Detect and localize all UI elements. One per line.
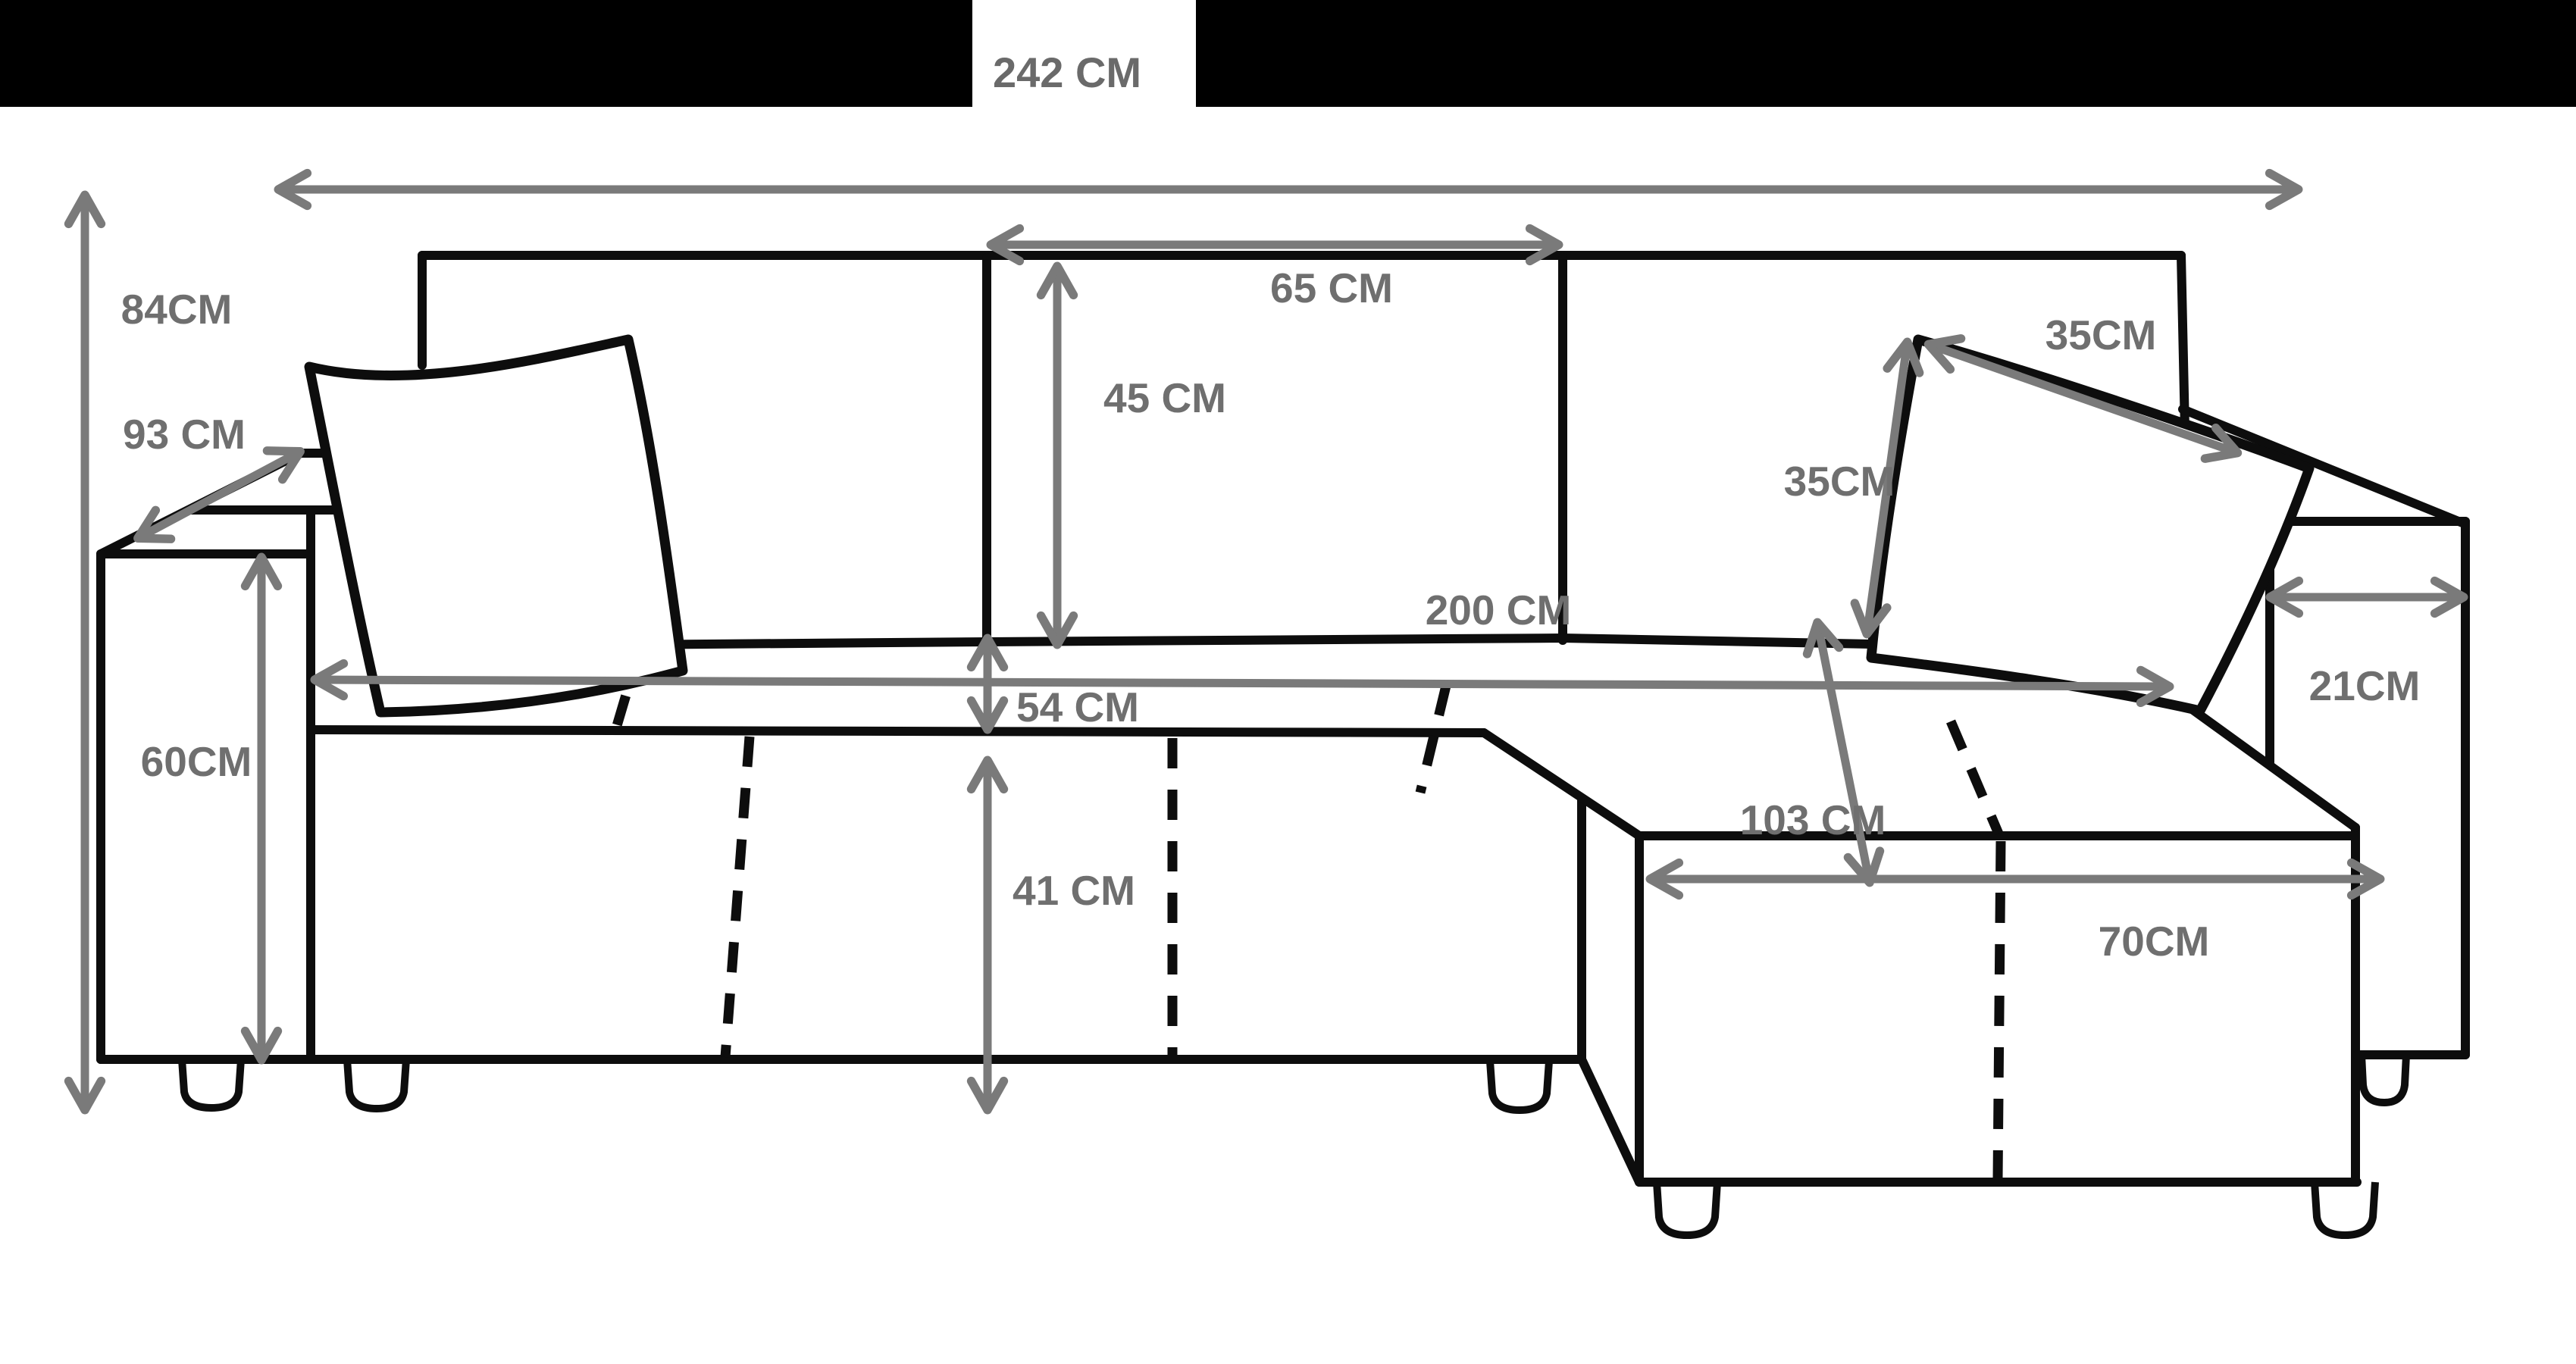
left-pillow	[309, 339, 683, 712]
seam-seat-right	[1420, 686, 1446, 793]
label-total-height: 84CM	[121, 286, 233, 333]
label-armrest-width: 21CM	[2309, 662, 2421, 709]
leg-front-left	[347, 1059, 406, 1109]
header-bar-left	[0, 0, 972, 107]
seam-chaise-front	[1998, 841, 2001, 1179]
label-seat-width: 200 CM	[1426, 587, 1572, 634]
leg-chaise-right	[2315, 1182, 2375, 1235]
label-depth: 93 CM	[123, 411, 246, 458]
label-chaise-width: 70CM	[2099, 918, 2210, 965]
header-bar-right	[1196, 0, 2576, 107]
arrow-depth	[141, 453, 297, 537]
chaise-bottom-left-diagonal	[1582, 1059, 1639, 1182]
label-chaise-length: 103 CM	[1740, 796, 1886, 843]
label-pillow-width: 35CM	[2045, 311, 2157, 358]
leg-chaise-left	[1657, 1182, 1717, 1235]
seam-front-left	[725, 737, 750, 1057]
right-pillow	[1871, 339, 2309, 711]
leg-front-right	[1490, 1061, 1549, 1110]
sofa-legs	[182, 1055, 2406, 1235]
label-base-height: 41 CM	[1013, 867, 1135, 914]
total-width-header-label: 242 CM	[993, 48, 1141, 96]
label-middle-seat-width: 65 CM	[1270, 264, 1393, 311]
leg-right-armrest	[2362, 1055, 2406, 1103]
leg-left-armrest	[182, 1059, 241, 1108]
seat-front-edge	[311, 730, 1484, 733]
sofa-dimension-diagram: 242 CM	[0, 0, 2576, 1364]
label-seat-edge: 54 CM	[1016, 684, 1139, 730]
seam-lines	[616, 646, 2001, 1179]
label-armrest-height: 60CM	[141, 738, 252, 785]
label-pillow-height: 35CM	[1784, 458, 1895, 505]
diagram-canvas: 242 CM	[0, 0, 2576, 1364]
label-backrest-height: 45 CM	[1103, 374, 1226, 421]
chaise-top-left-diagonal	[1484, 733, 1639, 836]
seam-chaise-top	[1951, 721, 1999, 834]
